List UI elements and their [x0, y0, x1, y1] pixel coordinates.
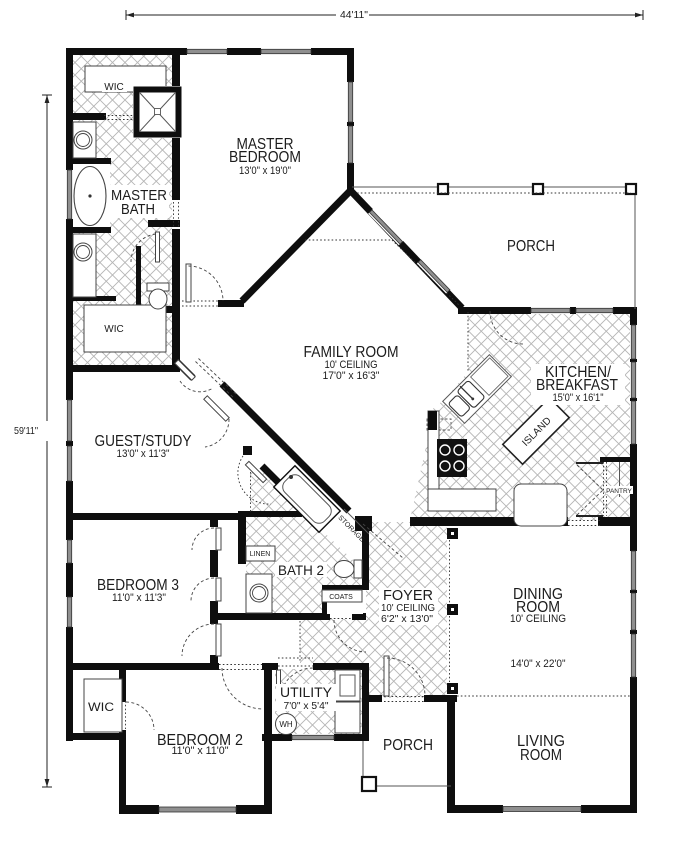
- svg-text:ROOM: ROOM: [520, 747, 562, 764]
- svg-text:WIC: WIC: [104, 82, 123, 93]
- svg-text:FOYER: FOYER: [383, 587, 433, 604]
- svg-text:11'0" x 11'3": 11'0" x 11'3": [112, 592, 166, 604]
- svg-text:13'0" x 11'3": 13'0" x 11'3": [117, 448, 170, 460]
- svg-text:59'11": 59'11": [14, 425, 38, 437]
- svg-text:COATS: COATS: [329, 594, 353, 601]
- svg-text:WH: WH: [279, 720, 293, 729]
- svg-text:10' CEILING: 10' CEILING: [381, 603, 435, 614]
- svg-text:WIC: WIC: [88, 700, 114, 714]
- svg-text:15'0" x 16'1": 15'0" x 16'1": [553, 392, 604, 404]
- svg-text:17'0" x 16'3": 17'0" x 16'3": [323, 370, 380, 382]
- svg-text:PORCH: PORCH: [507, 238, 555, 255]
- svg-text:PORCH: PORCH: [383, 737, 433, 754]
- svg-text:WIC: WIC: [104, 324, 123, 335]
- svg-text:11'0" x 11'0": 11'0" x 11'0": [172, 745, 229, 757]
- svg-text:10' CEILING: 10' CEILING: [510, 613, 566, 625]
- svg-text:7'0" x 5'4": 7'0" x 5'4": [284, 701, 329, 712]
- svg-text:LINEN: LINEN: [250, 551, 271, 558]
- svg-text:13'0" x 19'0": 13'0" x 19'0": [239, 165, 291, 177]
- svg-text:UTILITY: UTILITY: [280, 684, 333, 700]
- svg-text:14'0" x 22'0": 14'0" x 22'0": [511, 658, 566, 670]
- svg-text:BATH 2: BATH 2: [278, 562, 324, 578]
- svg-text:6'2" x 13'0": 6'2" x 13'0": [381, 614, 433, 625]
- svg-text:44'11": 44'11": [340, 9, 368, 21]
- svg-text:BATH: BATH: [121, 202, 155, 218]
- svg-text:BEDROOM: BEDROOM: [229, 149, 301, 166]
- svg-text:PANTRY: PANTRY: [606, 488, 632, 495]
